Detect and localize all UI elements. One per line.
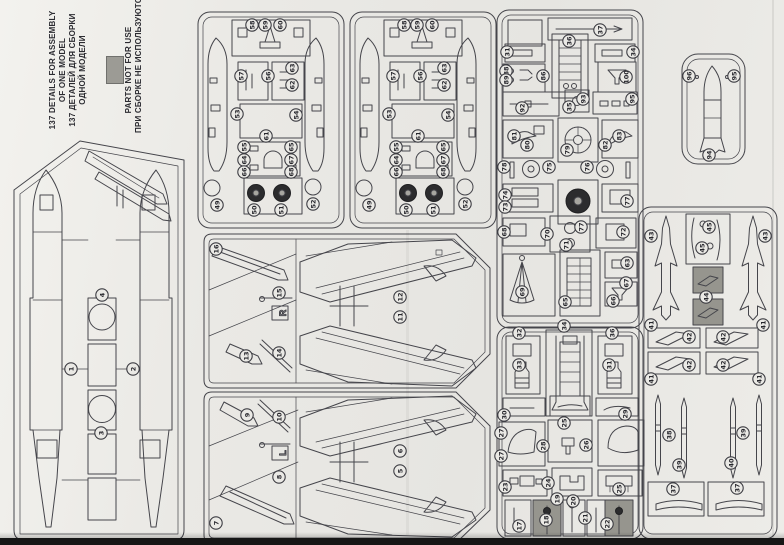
- svg-text:15: 15: [275, 288, 283, 298]
- svg-text:50: 50: [250, 205, 258, 215]
- part-number-59: 59: [411, 19, 423, 31]
- part-number-25: 25: [613, 483, 625, 495]
- svg-text:39: 39: [739, 428, 747, 438]
- part-number-57: 57: [387, 70, 399, 82]
- part-number-70: 70: [541, 228, 553, 240]
- svg-text:52: 52: [309, 199, 317, 208]
- part-number-8: 8: [273, 471, 285, 483]
- svg-text:60: 60: [428, 20, 436, 30]
- svg-text:86: 86: [539, 71, 547, 81]
- svg-text:67: 67: [287, 155, 295, 164]
- svg-text:95: 95: [730, 71, 738, 81]
- part-number-43: 43: [759, 230, 771, 242]
- part-number-68: 68: [498, 226, 510, 238]
- svg-text:65: 65: [439, 142, 447, 152]
- part-number-63: 63: [438, 62, 450, 74]
- svg-text:58: 58: [400, 20, 408, 30]
- launch-rail-part: [656, 501, 702, 511]
- photo-bottom-edge: [0, 538, 784, 545]
- svg-text:41: 41: [755, 374, 763, 384]
- svg-text:58: 58: [248, 20, 256, 30]
- fuselage-sprue: [14, 141, 184, 540]
- part-number-37: 37: [594, 24, 606, 36]
- part-number-65: 65: [559, 296, 571, 308]
- svg-text:80: 80: [523, 140, 531, 150]
- missile-part: [653, 216, 679, 320]
- svg-text:71: 71: [562, 240, 570, 250]
- part-number-79: 79: [561, 144, 573, 156]
- svg-text:23: 23: [501, 482, 509, 491]
- part-number-3: 3: [95, 427, 107, 439]
- part-number-50: 50: [400, 204, 412, 216]
- svg-text:35: 35: [565, 102, 573, 112]
- part-number-14: 14: [273, 347, 285, 359]
- part-number-55: 55: [238, 141, 250, 153]
- svg-text:20: 20: [569, 496, 577, 506]
- main-wheel: [248, 185, 265, 202]
- paper-crease: [406, 230, 409, 535]
- part-number-49: 49: [211, 199, 223, 211]
- intake-ring-part: [89, 304, 115, 330]
- svg-text:6: 6: [396, 448, 404, 453]
- part-number-42: 42: [683, 359, 695, 371]
- svg-text:41: 41: [647, 320, 655, 330]
- part-number-39: 39: [673, 459, 685, 471]
- wheel-part: [566, 189, 590, 213]
- svg-text:45: 45: [705, 222, 713, 232]
- svg-text:77: 77: [623, 196, 631, 205]
- svg-text:22: 22: [603, 519, 611, 528]
- part-number-31: 31: [501, 46, 513, 58]
- wing-panel-upper: [300, 396, 476, 456]
- exhaust-ring-part: [89, 396, 116, 423]
- svg-text:72: 72: [619, 227, 627, 236]
- part-number-71: 71: [560, 239, 572, 251]
- part-number-56: 56: [262, 70, 274, 82]
- part-number-34: 34: [627, 46, 639, 58]
- svg-text:82: 82: [601, 140, 609, 149]
- ring-part: [204, 180, 220, 196]
- svg-text:67: 67: [622, 278, 630, 287]
- part-number-67: 67: [620, 277, 632, 289]
- part-number-7: 7: [210, 517, 222, 529]
- small-parts-sprue-2: [350, 12, 496, 228]
- svg-text:7: 7: [212, 521, 220, 526]
- part-number-1: 1: [65, 363, 77, 375]
- part-number-38: 38: [663, 429, 675, 441]
- part-number-72: 72: [617, 226, 629, 238]
- part-number-26: 26: [580, 439, 592, 451]
- svg-text:51: 51: [429, 205, 437, 215]
- svg-text:61: 61: [262, 131, 270, 141]
- svg-text:59: 59: [413, 20, 421, 30]
- part-number-35: 35: [563, 101, 575, 113]
- svg-text:34: 34: [560, 321, 568, 331]
- svg-text:4: 4: [98, 292, 106, 297]
- svg-text:39: 39: [675, 460, 683, 470]
- part-number-18: 18: [540, 514, 552, 526]
- svg-text:27: 27: [497, 451, 505, 460]
- svg-text:5: 5: [396, 468, 404, 473]
- instrument-panel-part: [559, 40, 581, 92]
- svg-text:60: 60: [276, 20, 284, 30]
- svg-text:45: 45: [698, 243, 706, 253]
- part-number-43: 43: [645, 230, 657, 242]
- part-number-21: 21: [579, 512, 591, 524]
- svg-text:32: 32: [515, 328, 523, 337]
- ejection-seat-part: [552, 336, 588, 410]
- part-number-31: 31: [603, 359, 615, 371]
- part-number-markers: 4123585960575663625354615564666567684950…: [65, 19, 771, 532]
- svg-text:53: 53: [233, 109, 241, 118]
- part-number-36: 36: [563, 35, 575, 47]
- part-number-30: 30: [498, 409, 510, 421]
- svg-text:10: 10: [275, 412, 283, 422]
- part-number-41: 41: [645, 319, 657, 331]
- small-parts-sprue-1: [198, 12, 344, 228]
- svg-text:61: 61: [414, 131, 422, 141]
- part-number-39: 39: [737, 427, 749, 439]
- svg-text:62: 62: [288, 80, 296, 89]
- svg-text:63: 63: [288, 63, 296, 72]
- part-number-32: 32: [513, 327, 525, 339]
- svg-text:63: 63: [440, 63, 448, 72]
- svg-text:65: 65: [287, 142, 295, 152]
- svg-text:62: 62: [440, 80, 448, 89]
- part-number-95: 95: [728, 70, 740, 82]
- wing-panel-lower: [300, 326, 476, 386]
- canopy-parts: [85, 151, 171, 221]
- part-number-29: 29: [619, 408, 631, 420]
- svg-text:14: 14: [275, 348, 283, 358]
- part-number-6: 6: [394, 445, 406, 457]
- drop-tank-left: [208, 38, 227, 171]
- bomb-part: [700, 66, 725, 156]
- part-number-92: 92: [516, 102, 528, 114]
- svg-text:65: 65: [561, 297, 569, 307]
- sprue-letter-L: L: [278, 450, 288, 456]
- svg-text:70: 70: [543, 229, 551, 239]
- svg-text:37: 37: [596, 25, 604, 34]
- svg-text:53: 53: [385, 109, 393, 118]
- part-number-17: 17: [513, 520, 525, 532]
- part-number-64: 64: [238, 154, 250, 166]
- part-number-25: 25: [558, 417, 570, 429]
- svg-text:55: 55: [240, 142, 248, 152]
- svg-text:16: 16: [212, 244, 220, 254]
- part-number-40: 40: [725, 457, 737, 469]
- paper-edge-right: [772, 0, 774, 545]
- part-number-93: 93: [577, 93, 589, 105]
- svg-text:76: 76: [583, 162, 591, 172]
- part-number-66: 66: [607, 295, 619, 307]
- part-number-57: 57: [235, 70, 247, 82]
- fuselage-half-right: [140, 170, 172, 527]
- part-number-5: 5: [394, 465, 406, 477]
- svg-text:25: 25: [560, 418, 568, 428]
- part-number-61: 61: [412, 130, 424, 142]
- part-number-41: 41: [753, 373, 765, 385]
- part-number-62: 62: [286, 79, 298, 91]
- svg-text:66: 66: [240, 167, 248, 177]
- svg-text:66: 66: [609, 296, 617, 306]
- svg-text:95: 95: [628, 94, 636, 104]
- part-number-41: 41: [645, 373, 657, 385]
- wing-sprue-right: R: [204, 234, 490, 388]
- part-number-34: 34: [558, 320, 570, 332]
- svg-text:73: 73: [501, 202, 509, 211]
- svg-text:3: 3: [97, 431, 105, 436]
- part-number-9: 9: [241, 409, 253, 421]
- part-number-61: 61: [260, 130, 272, 142]
- svg-text:96: 96: [685, 71, 693, 81]
- svg-text:78: 78: [500, 162, 508, 172]
- svg-text:89: 89: [502, 75, 510, 85]
- svg-text:34: 34: [629, 47, 637, 57]
- part-number-94: 94: [703, 149, 715, 161]
- part-number-76: 76: [581, 161, 593, 173]
- svg-text:74: 74: [501, 190, 509, 200]
- svg-text:52: 52: [461, 199, 469, 208]
- svg-text:77: 77: [577, 222, 585, 231]
- svg-text:37: 37: [733, 483, 741, 492]
- svg-text:43: 43: [761, 231, 769, 240]
- svg-text:67: 67: [439, 155, 447, 164]
- svg-text:37: 37: [669, 484, 677, 493]
- scanned-instruction-sheet: 137 DETAILS FOR ASSEMBLY OF ONE MODEL 13…: [0, 0, 784, 545]
- svg-text:24: 24: [544, 478, 552, 488]
- svg-text:31: 31: [605, 360, 613, 370]
- svg-text:93: 93: [579, 94, 587, 103]
- svg-text:68: 68: [287, 167, 295, 177]
- svg-text:75: 75: [545, 162, 553, 172]
- svg-text:56: 56: [264, 71, 272, 81]
- part-number-54: 54: [290, 109, 302, 121]
- part-number-33: 33: [513, 359, 525, 371]
- part-number-53: 53: [383, 108, 395, 120]
- part-number-58: 58: [246, 19, 258, 31]
- svg-text:83: 83: [615, 131, 623, 140]
- part-number-100: 100: [620, 70, 632, 84]
- part-number-52: 52: [459, 198, 471, 210]
- part-number-37: 37: [667, 483, 679, 495]
- part-number-27: 27: [495, 427, 507, 439]
- svg-text:21: 21: [581, 513, 589, 523]
- part-number-81: 81: [508, 130, 520, 142]
- part-number-63: 63: [286, 62, 298, 74]
- svg-text:49: 49: [213, 200, 221, 210]
- part-number-20: 20: [567, 495, 579, 507]
- part-number-59: 59: [259, 19, 271, 31]
- part-number-63: 63: [621, 257, 633, 269]
- svg-text:41: 41: [647, 374, 655, 384]
- svg-text:49: 49: [365, 200, 373, 210]
- part-number-10: 10: [273, 411, 285, 423]
- svg-text:64: 64: [392, 155, 400, 165]
- sprue-line-art: R: [0, 0, 784, 545]
- svg-text:94: 94: [705, 150, 713, 160]
- part-number-45: 45: [703, 221, 715, 233]
- svg-text:44: 44: [702, 292, 710, 302]
- svg-text:100: 100: [622, 70, 630, 84]
- part-number-55: 55: [390, 141, 402, 153]
- svg-text:79: 79: [563, 145, 571, 155]
- part-number-65: 65: [285, 141, 297, 153]
- part-number-13: 13: [240, 350, 252, 362]
- center-runner-cells: [62, 240, 140, 520]
- part-number-65: 65: [437, 141, 449, 153]
- svg-text:66: 66: [392, 167, 400, 177]
- part-number-28: 28: [537, 440, 549, 452]
- svg-text:64: 64: [240, 155, 248, 165]
- part-number-95: 95: [626, 93, 638, 105]
- part-number-68: 68: [285, 166, 297, 178]
- part-number-77: 77: [621, 195, 633, 207]
- part-number-67: 67: [437, 154, 449, 166]
- rocket-part: [757, 395, 762, 475]
- svg-text:68: 68: [439, 167, 447, 177]
- part-number-52: 52: [307, 198, 319, 210]
- ring-part: [305, 179, 321, 195]
- part-number-75: 75: [543, 161, 555, 173]
- svg-text:11: 11: [396, 312, 404, 322]
- part-number-53: 53: [231, 108, 243, 120]
- svg-text:13: 13: [242, 351, 250, 360]
- part-number-42: 42: [717, 331, 729, 343]
- part-number-15: 15: [273, 287, 285, 299]
- part-number-67: 67: [285, 154, 297, 166]
- svg-text:63: 63: [623, 258, 631, 267]
- part-number-54: 54: [442, 109, 454, 121]
- drop-tank-right: [305, 38, 324, 171]
- svg-text:30: 30: [500, 410, 508, 420]
- sprue-letter-R: R: [278, 309, 288, 316]
- part-number-60: 60: [274, 19, 286, 31]
- svg-text:36: 36: [608, 328, 616, 338]
- part-number-69: 69: [516, 286, 528, 298]
- svg-text:38: 38: [665, 430, 673, 440]
- part-number-45: 45: [696, 242, 708, 254]
- part-number-56: 56: [414, 70, 426, 82]
- svg-text:57: 57: [237, 71, 245, 80]
- part-number-83: 83: [613, 130, 625, 142]
- wing-panel-upper: [300, 240, 476, 302]
- part-number-41: 41: [757, 319, 769, 331]
- svg-text:68: 68: [500, 227, 508, 237]
- part-number-23: 23: [499, 481, 511, 493]
- part-number-24: 24: [542, 477, 554, 489]
- part-number-50: 50: [248, 204, 260, 216]
- part-number-51: 51: [427, 204, 439, 216]
- svg-text:42: 42: [685, 332, 693, 341]
- part-number-12: 12: [394, 291, 406, 303]
- svg-text:54: 54: [444, 110, 452, 120]
- part-number-19: 19: [551, 493, 563, 505]
- part-number-49: 49: [363, 199, 375, 211]
- svg-text:42: 42: [719, 360, 727, 369]
- svg-text:19: 19: [553, 494, 561, 504]
- svg-text:28: 28: [539, 441, 547, 451]
- part-number-2: 2: [127, 363, 139, 375]
- svg-text:92: 92: [518, 103, 526, 112]
- launch-rail-part: [716, 501, 762, 511]
- svg-text:57: 57: [389, 71, 397, 80]
- svg-text:26: 26: [582, 440, 590, 450]
- pitot-boom-part: [556, 26, 622, 32]
- svg-text:69: 69: [518, 287, 526, 297]
- part-number-73: 73: [499, 201, 511, 213]
- part-number-16: 16: [210, 243, 222, 255]
- svg-text:42: 42: [719, 332, 727, 341]
- part-number-11: 11: [394, 311, 406, 323]
- part-number-37: 37: [731, 482, 743, 494]
- main-wheel: [274, 185, 291, 202]
- wing-panel-lower: [300, 478, 476, 537]
- svg-text:9: 9: [243, 412, 251, 417]
- part-number-82: 82: [599, 139, 611, 151]
- part-number-58: 58: [398, 19, 410, 31]
- part-number-80: 80: [521, 139, 533, 151]
- part-number-60: 60: [426, 19, 438, 31]
- part-number-78: 78: [498, 161, 510, 173]
- svg-text:27: 27: [497, 428, 505, 437]
- svg-text:56: 56: [416, 71, 424, 81]
- svg-text:55: 55: [392, 142, 400, 152]
- svg-text:18: 18: [542, 515, 550, 525]
- part-number-42: 42: [717, 359, 729, 371]
- not-for-use-cell: [693, 267, 723, 293]
- svg-text:42: 42: [685, 360, 693, 369]
- part-number-89: 89: [500, 74, 512, 86]
- part-number-74: 74: [499, 189, 511, 201]
- svg-text:17: 17: [515, 521, 523, 530]
- part-number-22: 22: [601, 518, 613, 530]
- part-number-64: 64: [390, 154, 402, 166]
- arch-part: [264, 151, 282, 168]
- part-number-66: 66: [238, 166, 250, 178]
- fuselage-half-left: [30, 170, 62, 527]
- svg-text:29: 29: [621, 409, 629, 419]
- svg-text:1: 1: [67, 366, 75, 371]
- part-number-96: 96: [683, 70, 695, 82]
- svg-text:43: 43: [647, 231, 655, 240]
- svg-text:36: 36: [565, 36, 573, 46]
- svg-text:25: 25: [615, 484, 623, 494]
- svg-text:33: 33: [515, 360, 523, 369]
- part-number-36: 36: [606, 327, 618, 339]
- svg-text:8: 8: [275, 474, 283, 479]
- svg-text:40: 40: [727, 458, 735, 468]
- part-number-86: 86: [537, 70, 549, 82]
- part-number-27: 27: [495, 450, 507, 462]
- svg-text:2: 2: [129, 367, 137, 372]
- part-number-68: 68: [437, 166, 449, 178]
- svg-text:50: 50: [402, 205, 410, 215]
- svg-text:54: 54: [292, 110, 300, 120]
- part-number-62: 62: [438, 79, 450, 91]
- svg-text:51: 51: [277, 205, 285, 215]
- svg-text:31: 31: [503, 47, 511, 57]
- svg-text:59: 59: [261, 20, 269, 30]
- part-number-42: 42: [683, 331, 695, 343]
- part-number-51: 51: [275, 204, 287, 216]
- svg-text:12: 12: [396, 292, 404, 301]
- rocket-part: [656, 395, 661, 475]
- part-number-66: 66: [390, 166, 402, 178]
- svg-text:81: 81: [510, 131, 518, 141]
- part-number-4: 4: [96, 289, 108, 301]
- part-number-44: 44: [700, 291, 712, 303]
